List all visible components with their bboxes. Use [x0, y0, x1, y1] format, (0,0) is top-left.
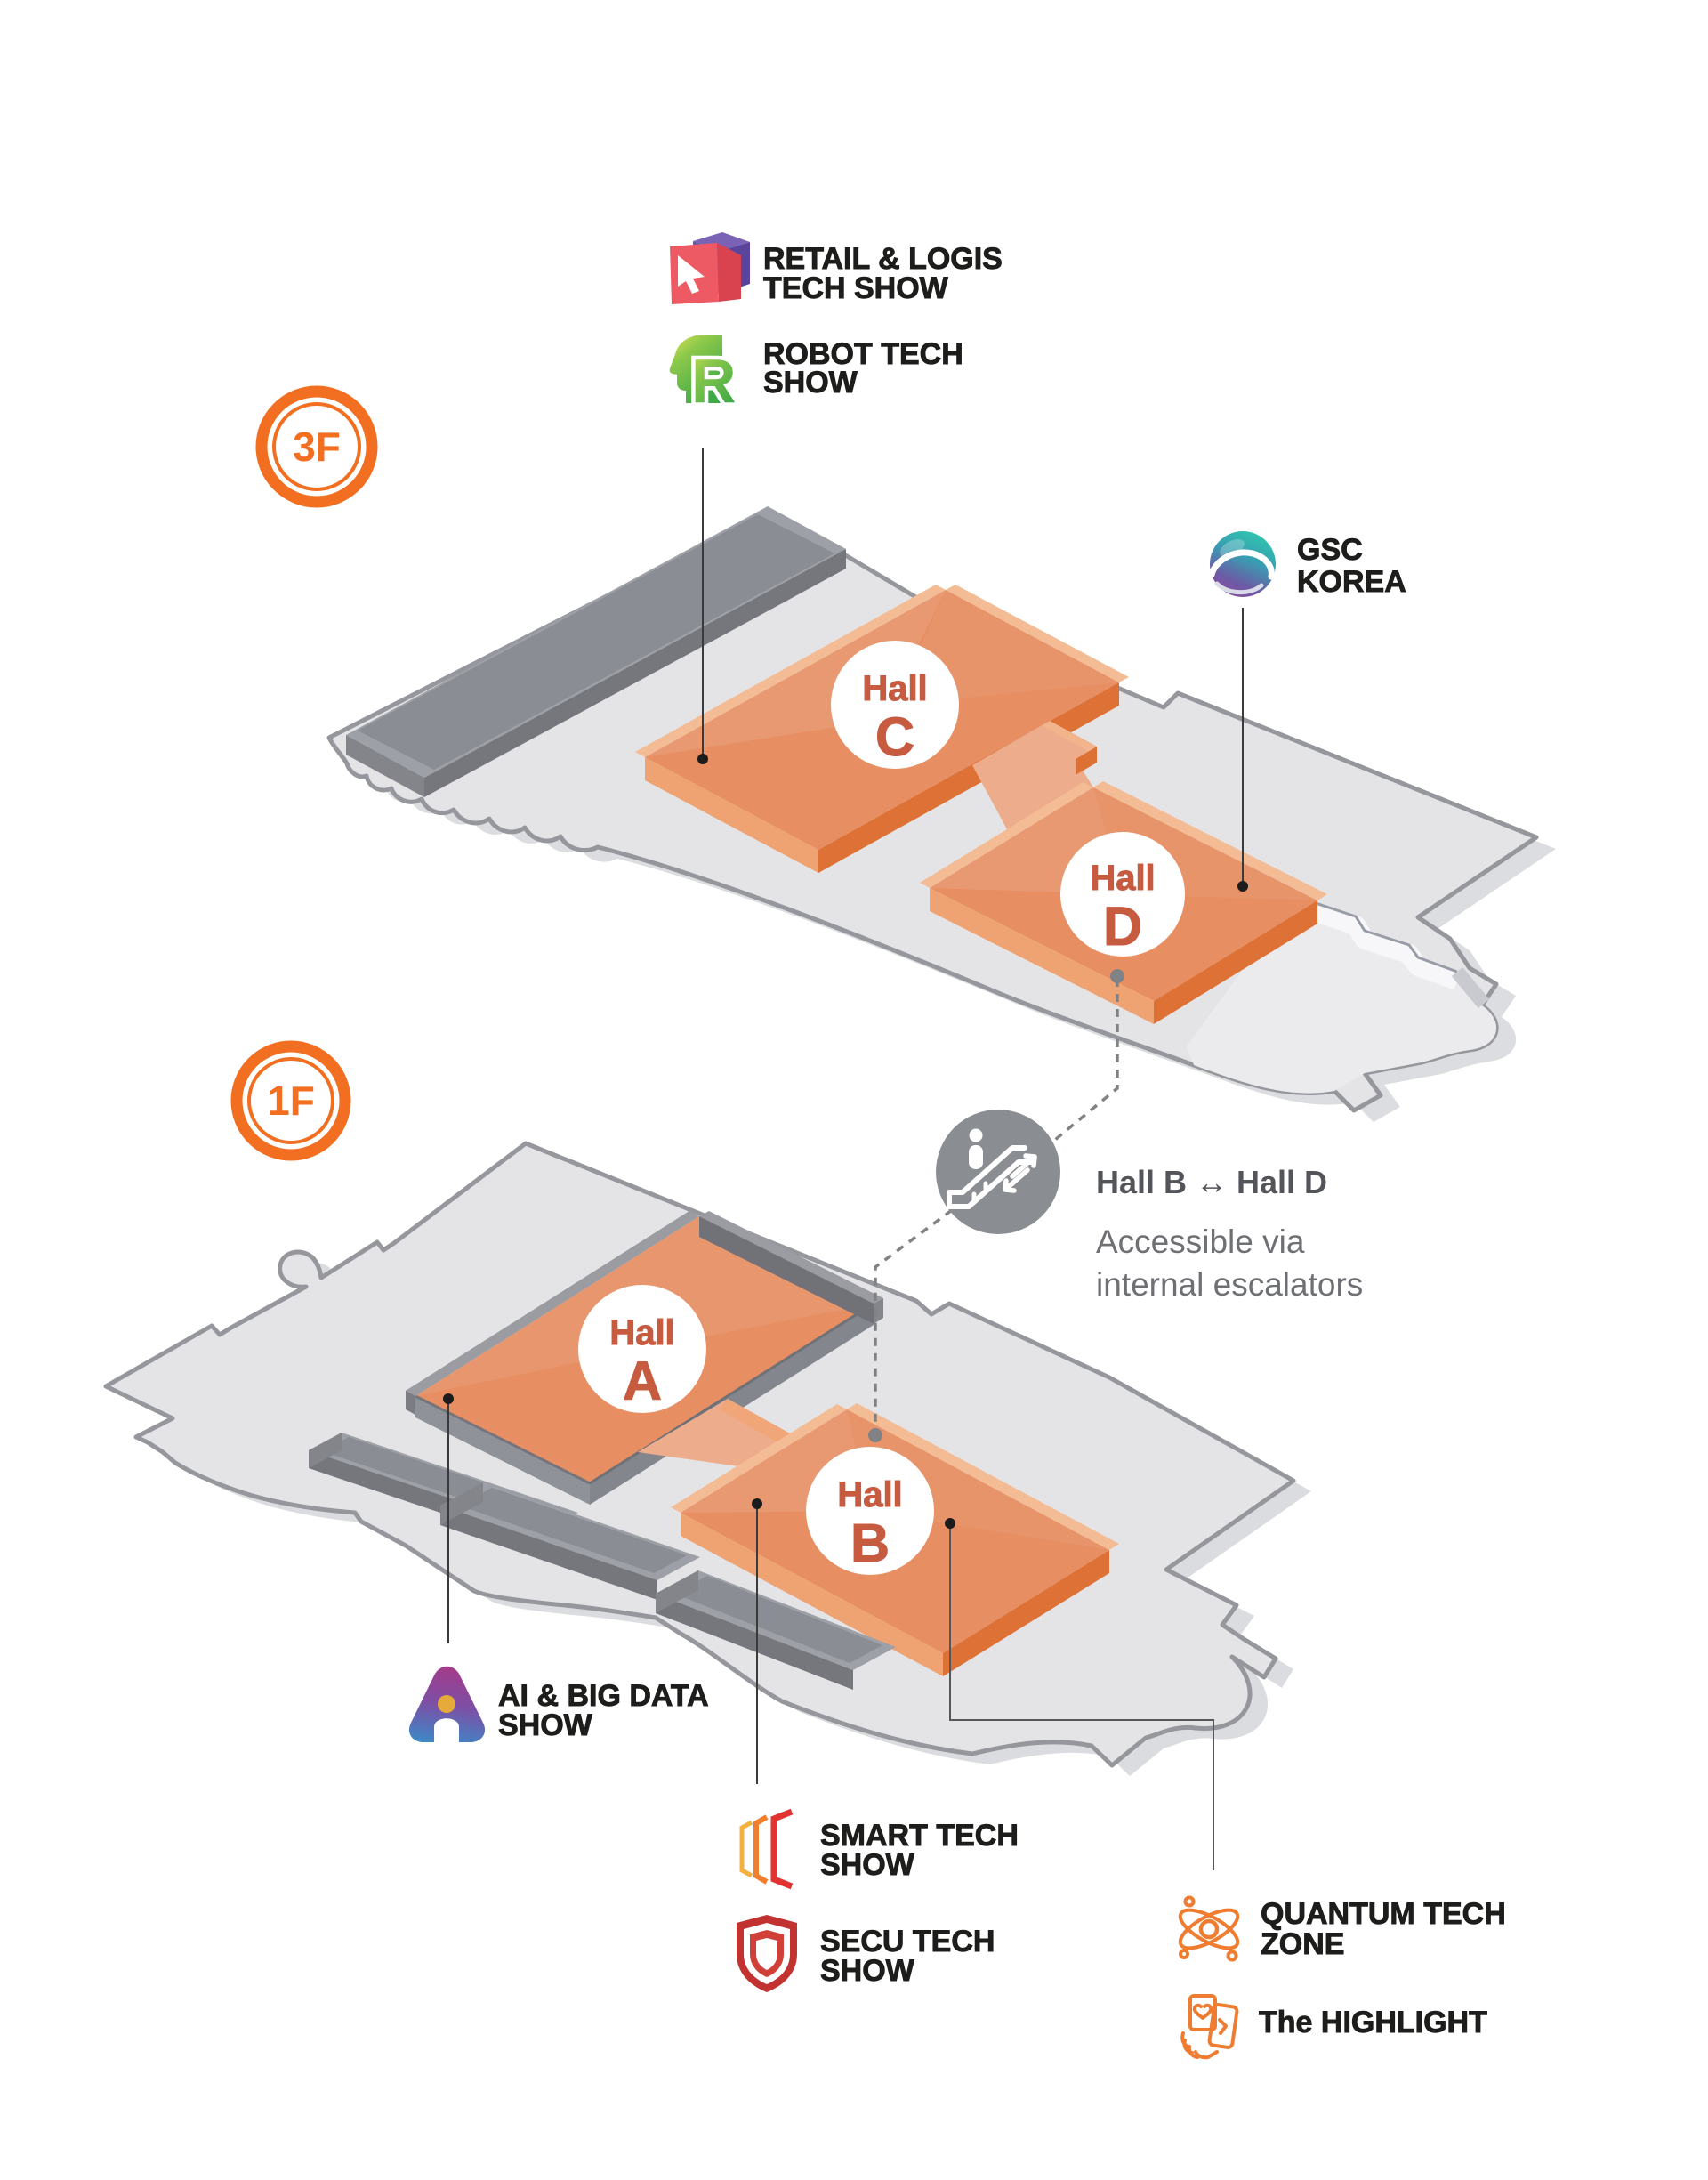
svg-text:SHOW: SHOW — [820, 1954, 915, 1988]
svg-text:SHOW: SHOW — [763, 366, 858, 400]
svg-text:Hall: Hall — [609, 1313, 674, 1352]
svg-text:1F: 1F — [267, 1078, 315, 1124]
svg-text:Hall: Hall — [862, 669, 927, 708]
svg-text:Hall: Hall — [837, 1475, 902, 1514]
svg-text:The HIGHLIGHT: The HIGHLIGHT — [1259, 2006, 1487, 2039]
svg-text:SHOW: SHOW — [820, 1848, 915, 1882]
svg-text:D: D — [1103, 896, 1142, 957]
svg-text:3F: 3F — [293, 424, 341, 470]
svg-text:KOREA: KOREA — [1297, 565, 1406, 599]
svg-text:R: R — [691, 346, 737, 416]
svg-text:QUANTUM TECH: QUANTUM TECH — [1261, 1897, 1506, 1931]
svg-text:GSC: GSC — [1297, 533, 1363, 567]
svg-text:B: B — [850, 1513, 890, 1573]
svg-text:SHOW: SHOW — [498, 1708, 593, 1742]
svg-text:Hall: Hall — [1090, 859, 1155, 898]
svg-text:Accessible via: Accessible via — [1096, 1223, 1305, 1260]
svg-text:Hall B ↔ Hall D: Hall B ↔ Hall D — [1096, 1164, 1327, 1200]
svg-text:internal escalators: internal escalators — [1096, 1266, 1363, 1303]
svg-text:C: C — [875, 706, 914, 767]
svg-text:A: A — [623, 1351, 662, 1411]
svg-text:TECH SHOW: TECH SHOW — [763, 271, 949, 305]
svg-text:ZONE: ZONE — [1261, 1927, 1344, 1961]
